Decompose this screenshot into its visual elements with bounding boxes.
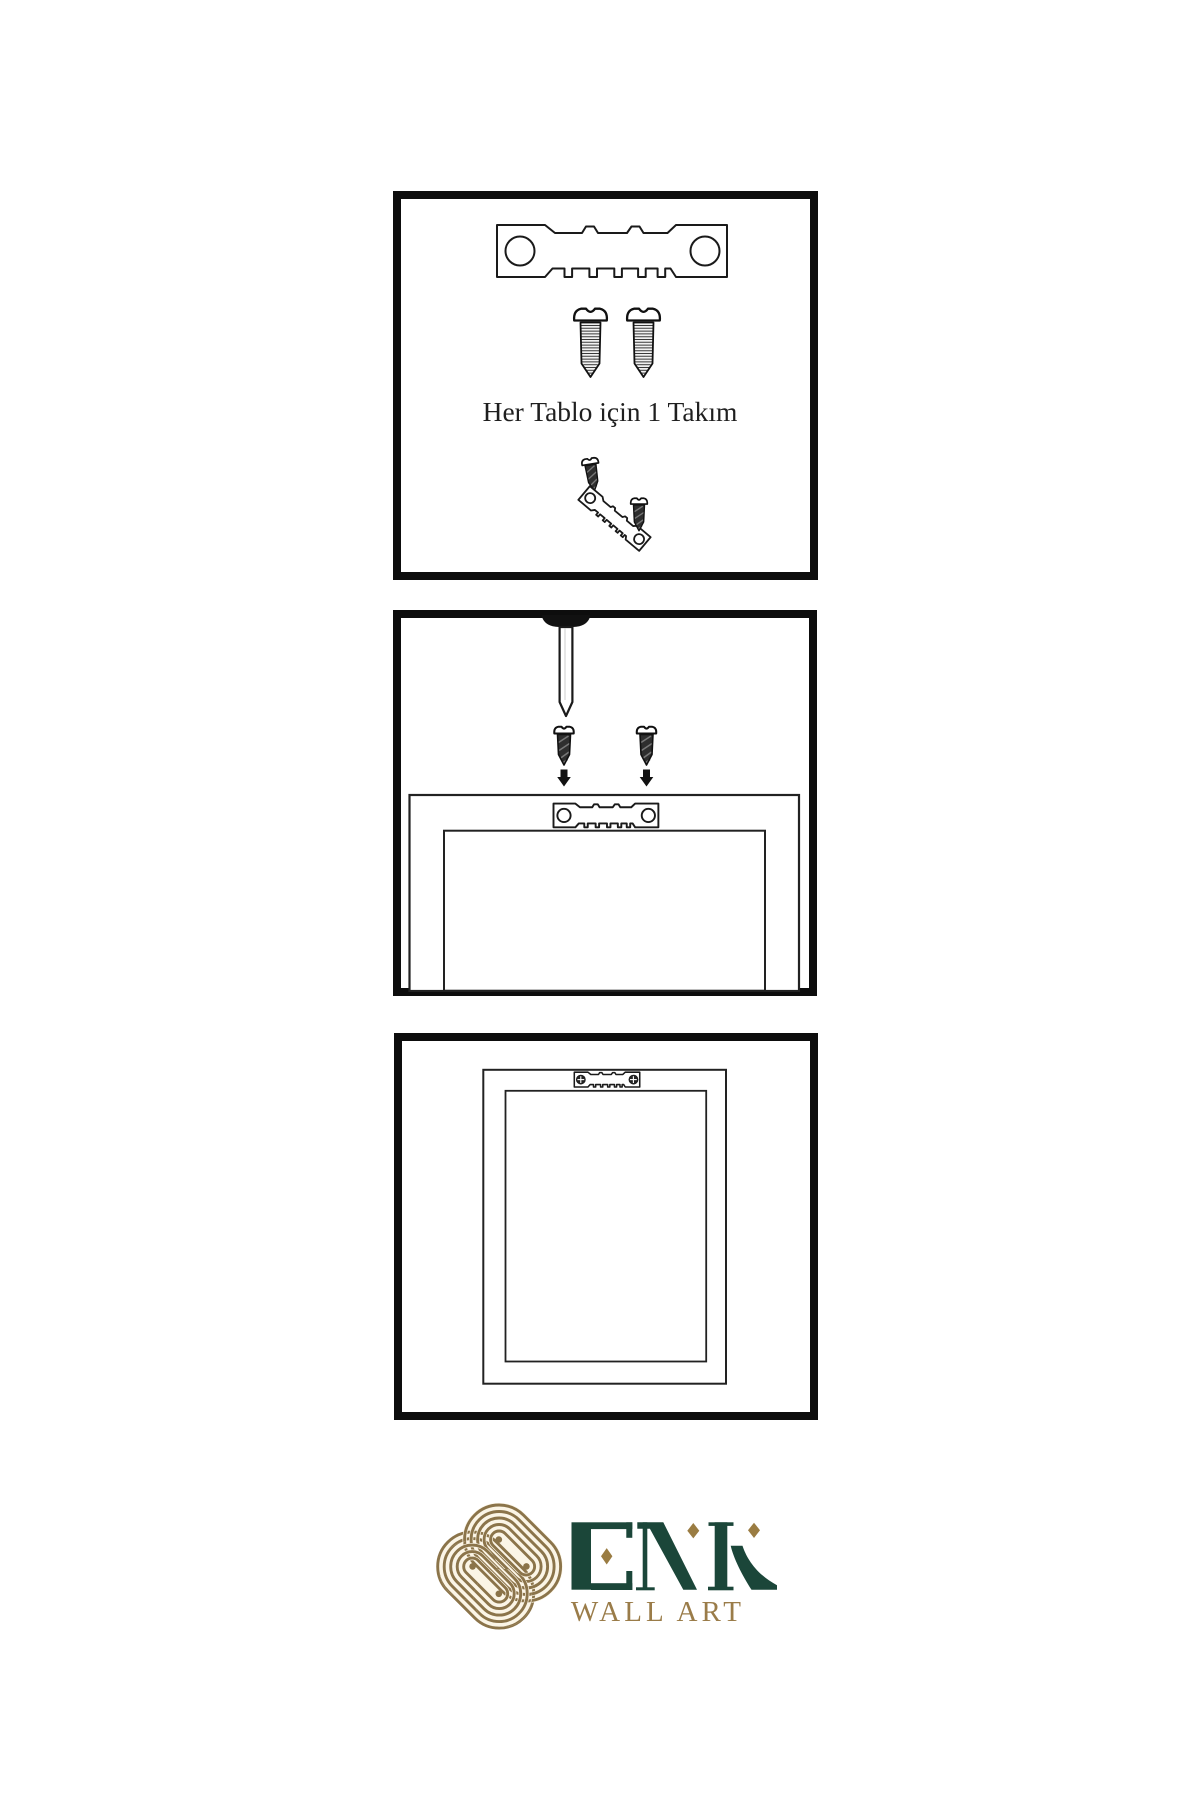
svg-text:WALL ART: WALL ART (571, 1596, 745, 1628)
svg-text:Her Tablo için 1 Takım: Her Tablo için 1 Takım (483, 396, 738, 427)
